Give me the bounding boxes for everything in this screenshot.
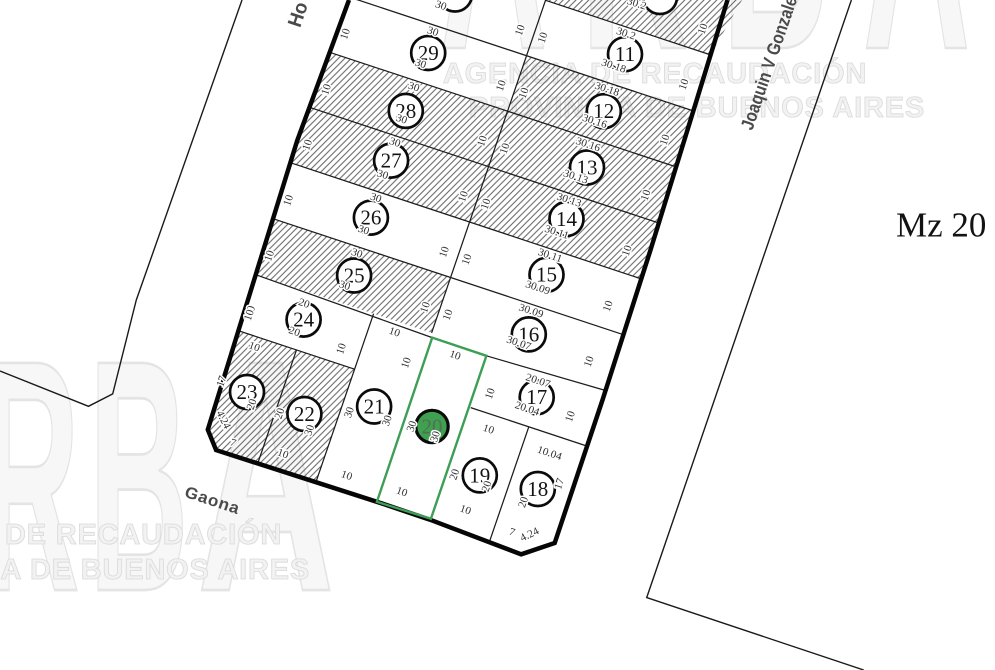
svg-text:18: 18 — [527, 477, 548, 501]
svg-text:21: 21 — [364, 394, 385, 418]
svg-text:Mz 20: Mz 20 — [896, 206, 986, 245]
svg-text:RB: RB — [0, 291, 198, 660]
svg-text:AGENCIA DE RECAUDACIÓN: AGENCIA DE RECAUDACIÓN — [0, 517, 282, 551]
svg-text:PROVINCIA DE BUENOS AIRES: PROVINCIA DE BUENOS AIRES — [0, 554, 310, 586]
svg-text:22: 22 — [294, 402, 315, 426]
